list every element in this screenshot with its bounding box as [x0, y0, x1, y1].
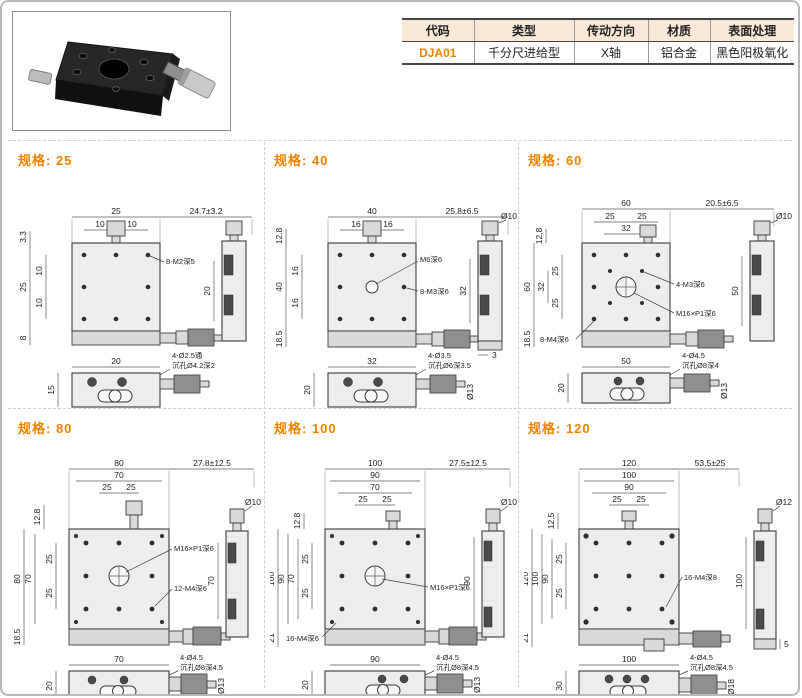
side-view: Ø12 100 5 — [734, 497, 792, 649]
dim-top-width: 80 — [114, 458, 124, 468]
stage-base — [325, 629, 425, 645]
drawing-60: 60 20.5±6.5 25 25 32 12.8 60 — [524, 171, 796, 415]
dim-bottom-width: 90 — [370, 654, 380, 664]
micrometer — [416, 330, 479, 348]
dim-bottom-width: 50 — [621, 356, 631, 366]
bottom-view: 4-Ø4.5 沉孔Ø8深4.5 90 20 Ø13 — [300, 653, 482, 696]
plan-view: 25 24.7±3.2 10 10 3.3 25 10 10 8 — [18, 206, 252, 346]
dim-hole-pitch-right: 10 — [127, 219, 137, 229]
dim-micrometer-diameter: Ø13 — [216, 678, 226, 694]
dim-knob-offset: 12.8 — [292, 512, 302, 529]
dim-pitch-upper: 25 — [44, 554, 54, 564]
side-knob — [226, 221, 242, 235]
dim-bottom-width: 20 — [111, 356, 121, 366]
side-knob — [482, 221, 498, 235]
dim-base-height: 18.5 — [524, 330, 532, 347]
spec-section-100: 规格: 100 100 27.5±12.5 90 70 25 25 — [270, 418, 520, 696]
dim-top-width: 100 — [368, 458, 382, 468]
spec-title-100: 规格: 100 — [274, 418, 520, 437]
side-knob — [230, 509, 244, 523]
drawing-25: 25 24.7±3.2 10 10 3.3 25 10 10 8 — [14, 171, 264, 415]
spec-title-60: 规格: 60 — [528, 150, 798, 169]
dim-top-width: 60 — [621, 198, 631, 208]
dim-travel: 24.7±3.2 — [189, 206, 222, 216]
spec-title-25: 规格: 25 — [18, 150, 264, 169]
drive-knob — [386, 511, 400, 521]
micrometer — [169, 627, 230, 645]
callout-corner-thread: 4-M3深6 — [676, 280, 705, 289]
callout-base-thread: 8-M4深6 — [540, 335, 569, 344]
drawing-120: 120 53.5±25 100 90 25 25 12.5 120 10 — [524, 439, 796, 696]
dim-hole-pitch-left: 25 — [358, 494, 368, 504]
micrometer — [670, 330, 733, 348]
dim-hole-pitch-right: 25 — [637, 211, 647, 221]
spec-section-60: 规格: 60 60 20.5±6.5 25 25 32 — [524, 150, 798, 415]
dim-total-height: 80 — [14, 574, 22, 584]
col-header-code: 代码 — [402, 19, 474, 42]
micrometer-bottom — [679, 675, 726, 695]
col-header-material: 材质 — [648, 19, 710, 42]
center-thread-hole — [366, 281, 378, 293]
side-view: 20 — [202, 221, 246, 341]
col-header-surface-finish: 表面处理 — [710, 19, 794, 42]
callout-base-thread: 16-M4深6 — [286, 634, 319, 643]
dim-side-length: 70 — [206, 576, 216, 586]
micrometer-bottom — [670, 374, 719, 392]
dim-knob-offset: 12.5 — [546, 512, 556, 529]
dim-bottom-width: 100 — [622, 654, 636, 664]
dim-bottom-height: 20 — [556, 383, 566, 393]
side-view: Ø10 70 — [206, 497, 261, 637]
dim-micrometer-diameter: Ø13 — [472, 677, 482, 693]
bottom-view: 4-Ø3.5 沉孔Ø6深3.5 32 20 Ø13 — [302, 351, 475, 407]
drive-knob — [640, 225, 656, 237]
micrometer-bottom — [169, 674, 216, 694]
dim-pitch-lower: 25 — [300, 588, 310, 598]
dim-bottom-height: 15 — [46, 385, 56, 395]
dim-travel: 25.8±6.5 — [445, 206, 478, 216]
dim-mid-height: 90 — [276, 574, 286, 584]
drive-knob — [622, 511, 636, 521]
spec-title-120: 规格: 120 — [528, 418, 798, 437]
callout-counterbore-line1: 4-Ø4.5 — [682, 351, 705, 360]
stage-base — [328, 331, 416, 347]
micrometer-bottom — [160, 375, 209, 393]
callout-screw-thread: 8-M2深5 — [166, 257, 195, 266]
dim-top3: 90 — [624, 482, 634, 492]
callout-counterbore-line1: 4-Ø4.5 — [180, 653, 203, 662]
dim-pitch-upper: 10 — [34, 266, 44, 276]
dim-top-width: 25 — [111, 206, 121, 216]
dim-total-height: 25 — [18, 282, 28, 292]
dim-bottom-width: 32 — [367, 356, 377, 366]
dim-total-height: 40 — [274, 282, 284, 292]
dim-pitch-lower: 10 — [34, 298, 44, 308]
dim-travel: 27.8±12.5 — [193, 458, 231, 468]
dim-hole-pitch-right: 25 — [382, 494, 392, 504]
dim-bottom-height: 20 — [300, 680, 310, 690]
drawing-100: 100 27.5±12.5 90 70 25 25 12.8 — [270, 439, 520, 696]
bottom-view: 4-Ø2.5通 沉孔Ø4.2深2 20 15 — [46, 350, 215, 407]
bottom-view: 4-Ø4.5 沉孔Ø8深4 50 20 Ø13 — [556, 351, 729, 403]
dim-micrometer-diameter: Ø13 — [465, 384, 475, 400]
cell-drive-direction: X轴 — [574, 42, 648, 65]
dim-base-height: 18.5 — [274, 330, 284, 347]
side-view: Ø10 90 — [462, 497, 517, 637]
dim-hole-pitch-left: 25 — [612, 494, 622, 504]
datasheet-page: 代码 类型 传动方向 材质 表面处理 DJA01 千分尺进给型 X轴 铝合金 黑… — [0, 0, 800, 696]
dim-pitch-lower: 16 — [290, 298, 300, 308]
dim-side-length: 100 — [734, 574, 744, 588]
micrometer-bottom — [416, 375, 465, 393]
dim-knob-diameter: Ø10 — [776, 211, 792, 221]
dim-pitch-upper: 25 — [554, 554, 564, 564]
dim-knob-diameter: Ø12 — [776, 497, 792, 507]
callout-counterbore-line2: 沉孔Ø8深4 — [682, 361, 719, 370]
callout-center-thread: M6深6 — [420, 255, 442, 264]
callout-screw-thread: 8-M3深6 — [420, 287, 449, 296]
drawing-80: 80 27.8±12.5 70 25 25 12.8 80 — [14, 439, 264, 696]
dim-travel: 53.5±25 — [695, 458, 726, 468]
callout-counterbore-line2: 沉孔Ø6深3.5 — [428, 361, 471, 370]
stage-photo — [28, 42, 216, 116]
dim-side-length: 32 — [458, 286, 468, 296]
dim-hole-pitch-right: 16 — [383, 219, 393, 229]
stage-base — [69, 629, 169, 645]
dim-top3: 70 — [370, 482, 380, 492]
dim-hole-pitch-left: 16 — [351, 219, 361, 229]
cell-material: 铝合金 — [648, 42, 710, 65]
callout-counterbore-line1: 4-Ø2.5通 — [172, 350, 203, 360]
dim-mid-height: 70 — [23, 574, 33, 584]
col-header-type: 类型 — [474, 19, 574, 42]
dim-side-foot: 3 — [492, 350, 497, 360]
dim-base-height: 21 — [270, 633, 276, 643]
callout-counterbore-line1: 4-Ø3.5 — [428, 351, 451, 360]
bottom-view: 4-Ø4.5 沉孔Ø8深4.5 100 30 Ø18 — [554, 653, 736, 696]
callout-counterbore-line1: 4-Ø4.5 — [436, 653, 459, 662]
side-view: Ø10 50 — [730, 211, 792, 341]
plan-view: 120 53.5±25 100 90 25 25 12.5 120 10 — [524, 458, 739, 651]
dim-total-height: 60 — [524, 282, 532, 292]
stage-base — [582, 331, 670, 347]
spec-title-80: 规格: 80 — [18, 418, 264, 437]
dim-top2: 70 — [114, 470, 124, 480]
dim-side-length: 90 — [462, 576, 472, 586]
micrometer — [160, 329, 223, 346]
dim-pitch-lower: 25 — [554, 588, 564, 598]
plan-view: 40 25.8±6.5 16 16 12.8 40 16 16 18.5 — [274, 206, 508, 348]
dim-inner-height: 70 — [286, 574, 296, 584]
dim-side-length: 20 — [202, 286, 212, 296]
dim-travel: 27.5±12.5 — [449, 458, 487, 468]
side-knob — [754, 221, 770, 235]
drive-knob — [126, 501, 142, 515]
dim-inner-pitch: 32 — [621, 223, 631, 233]
callout-counterbore-line1: 4-Ø4.5 — [690, 653, 713, 662]
stage-base — [72, 331, 160, 345]
plan-view: 60 20.5±6.5 25 25 32 12.8 60 — [524, 198, 774, 348]
spec-section-120: 规格: 120 120 53.5±25 100 90 25 25 — [524, 418, 798, 696]
col-header-drive-direction: 传动方向 — [574, 19, 648, 42]
dim-side-foot: 5 — [784, 639, 789, 649]
dim-inner-height: 90 — [540, 574, 550, 584]
dim-hole-pitch-left: 10 — [95, 219, 105, 229]
dim-hole-pitch-right: 25 — [126, 482, 136, 492]
callout-counterbore-line2: 沉孔Ø8深4.5 — [180, 663, 223, 672]
callout-screw-thread: 12-M4深6 — [174, 584, 207, 593]
drive-knob — [363, 221, 381, 236]
left-knob-photo — [28, 69, 52, 84]
dim-knob-diameter: Ø10 — [501, 497, 517, 507]
dim-knob-diameter: Ø10 — [245, 497, 261, 507]
dim-hole-pitch-left: 25 — [102, 482, 112, 492]
dim-knob-offset: 12.8 — [534, 227, 544, 244]
dim-base-height: 8 — [18, 335, 28, 340]
spec-section-25: 规格: 25 25 24.7±3.2 10 10 3.3 25 — [14, 150, 264, 415]
dim-pitch-lower: 25 — [44, 588, 54, 598]
dim-micrometer-diameter: Ø18 — [726, 679, 736, 695]
dim-knob-offset: 3.3 — [18, 231, 28, 243]
cell-code: DJA01 — [402, 42, 474, 65]
cell-surface-finish: 黑色阳极氧化 — [710, 42, 794, 65]
dim-top2: 100 — [622, 470, 636, 480]
divider-col1 — [264, 142, 265, 688]
dim-bottom-height: 30 — [554, 681, 564, 691]
divider-top — [8, 140, 792, 141]
dim-pitch-upper: 16 — [290, 266, 300, 276]
callout-center-thread: M16×P1深6 — [676, 309, 716, 318]
callout-counterbore-line2: 沉孔Ø8深4.5 — [690, 663, 733, 672]
callout-counterbore-line2: 沉孔Ø8深4.5 — [436, 663, 479, 672]
product-spec-table: 代码 类型 传动方向 材质 表面处理 DJA01 千分尺进给型 X轴 铝合金 黑… — [402, 18, 794, 65]
dim-pitch-upper: 25 — [300, 554, 310, 564]
callout-center-thread: M16×P1深6 — [174, 544, 214, 553]
dim-bottom-height: 20 — [44, 681, 54, 691]
product-photo — [12, 11, 231, 131]
cell-type: 千分尺进给型 — [474, 42, 574, 65]
dim-travel: 20.5±6.5 — [705, 198, 738, 208]
dim-hole-pitch-right: 25 — [636, 494, 646, 504]
dim-bottom-height: 20 — [302, 385, 312, 395]
dim-knob-diameter: Ø10 — [501, 211, 517, 221]
micrometer — [425, 627, 486, 645]
dim-inner-height: 32 — [536, 282, 546, 292]
dim-pitch-upper: 25 — [550, 266, 560, 276]
dim-base-height: 18.5 — [14, 628, 22, 645]
side-knob — [486, 509, 500, 523]
dim-top2: 90 — [370, 470, 380, 480]
callout-screw-thread: 16-M4深8 — [684, 573, 717, 582]
drive-knob — [107, 221, 125, 236]
dim-base-height: 21 — [524, 633, 530, 643]
dim-pitch-lower: 25 — [550, 298, 560, 308]
bottom-view: 4-Ø4.5 沉孔Ø8深4.5 70 20 Ø13 — [44, 653, 226, 696]
side-knob — [758, 509, 772, 523]
dim-bottom-width: 70 — [114, 654, 124, 664]
dim-top-width: 40 — [367, 206, 377, 216]
spec-section-40: 规格: 40 40 25.8±6.5 16 16 12.8 40 — [270, 150, 520, 415]
dim-side-length: 50 — [730, 286, 740, 296]
dim-top-width: 120 — [622, 458, 636, 468]
dim-mid-height: 100 — [530, 572, 540, 586]
spec-section-80: 规格: 80 80 27.8±12.5 70 25 25 — [14, 418, 264, 696]
dim-knob-offset: 12.8 — [32, 508, 42, 525]
spec-title-40: 规格: 40 — [274, 150, 520, 169]
callout-counterbore-line2: 沉孔Ø4.2深2 — [172, 361, 215, 370]
drawing-40: 40 25.8±6.5 16 16 12.8 40 16 16 18.5 — [270, 171, 520, 415]
dim-knob-offset: 12.8 — [274, 227, 284, 244]
dim-micrometer-diameter: Ø13 — [719, 383, 729, 399]
product-photo-illustration — [13, 12, 228, 128]
micrometer-bottom — [425, 674, 472, 693]
dim-hole-pitch-left: 25 — [605, 211, 615, 221]
